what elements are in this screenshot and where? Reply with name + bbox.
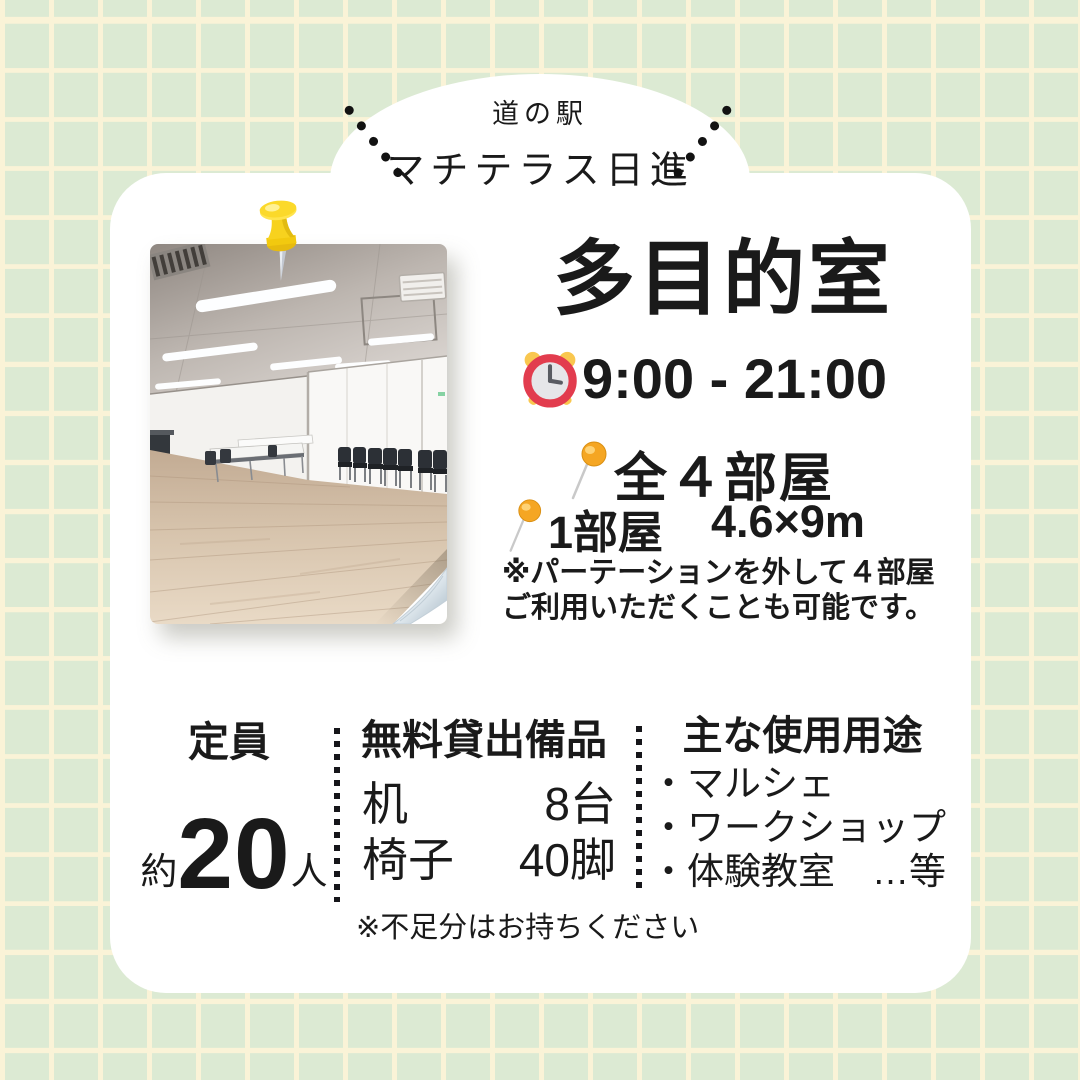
equipment-header: 無料貸出備品 (350, 706, 618, 766)
partition-note-line1: ※パーテーションを外して４部屋 (502, 556, 935, 591)
capacity-approx: 約 (140, 841, 177, 900)
dotted-divider-2 (636, 726, 642, 890)
capacity-number: 20 (177, 808, 290, 900)
equipment-qty: 8台 (544, 776, 616, 832)
flyer-canvas: 道の駅 マチテラス日進 (0, 0, 1080, 1080)
room-size-row: 1部屋 4.6×9m (506, 496, 865, 561)
usage-item: ・マルシェ (650, 762, 946, 806)
pushpin-icon (244, 196, 318, 288)
venue-station-label: 道の駅 (330, 92, 750, 131)
room-title: 多目的室 (553, 237, 893, 323)
equipment-name: 机 (362, 776, 408, 832)
room-photo-illustration (150, 244, 447, 624)
unit-size: 4.6×9m (711, 496, 865, 548)
partition-note: ※パーテーションを外して４部屋 ご利用いただくことも可能です。 (502, 556, 935, 626)
equipment-note: ※不足分はお持ちください (356, 904, 699, 946)
usage-item: ・体験教室 …等 (650, 850, 946, 894)
opening-hours: 9:00 - 21:00 (582, 346, 887, 411)
equipment-qty: 40脚 (519, 832, 616, 888)
equipment-row: 机 8台 (362, 776, 616, 832)
unit-label: 1部屋 (548, 496, 663, 561)
usage-header: 主な使用用途 (660, 703, 945, 761)
alarm-clock-icon (521, 349, 579, 409)
pin-icon (506, 498, 548, 558)
partition-note-line2: ご利用いただくことも可能です。 (502, 591, 935, 626)
equipment-name: 椅子 (362, 832, 454, 888)
equipment-row: 椅子 40脚 (362, 832, 616, 888)
usage-item: ・ワークショップ (650, 806, 946, 850)
room-photo (150, 244, 447, 624)
capacity-value: 約 20 人 (124, 798, 344, 900)
capacity-unit: 人 (291, 841, 328, 900)
dotted-divider-1 (334, 728, 340, 902)
usage-list: ・マルシェ ・ワークショップ ・体験教室 …等 (650, 762, 946, 894)
venue-header: 道の駅 マチテラス日進 (330, 92, 750, 194)
hours-row: 9:00 - 21:00 (521, 346, 887, 411)
equipment-list: 机 8台 椅子 40脚 (362, 776, 616, 888)
capacity-header: 定員 (148, 708, 310, 768)
